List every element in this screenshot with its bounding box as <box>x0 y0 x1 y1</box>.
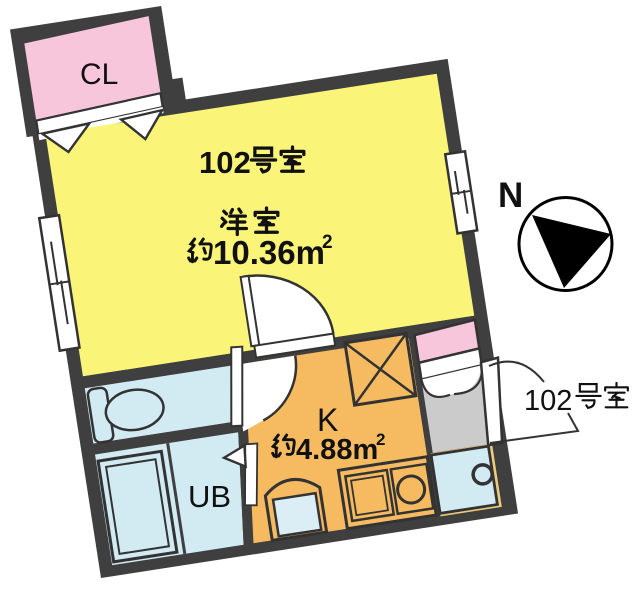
svg-text:UB: UB <box>188 479 231 514</box>
svg-text:2: 2 <box>322 232 333 253</box>
svg-text:CL: CL <box>80 58 118 91</box>
svg-text:N: N <box>498 176 523 215</box>
svg-text:10.36m: 10.36m <box>213 234 325 271</box>
svg-text:102: 102 <box>199 145 251 180</box>
svg-text:4.88m: 4.88m <box>296 434 378 466</box>
svg-text:102: 102 <box>524 385 572 417</box>
svg-text:K: K <box>317 402 338 438</box>
svg-text:2: 2 <box>376 430 385 449</box>
